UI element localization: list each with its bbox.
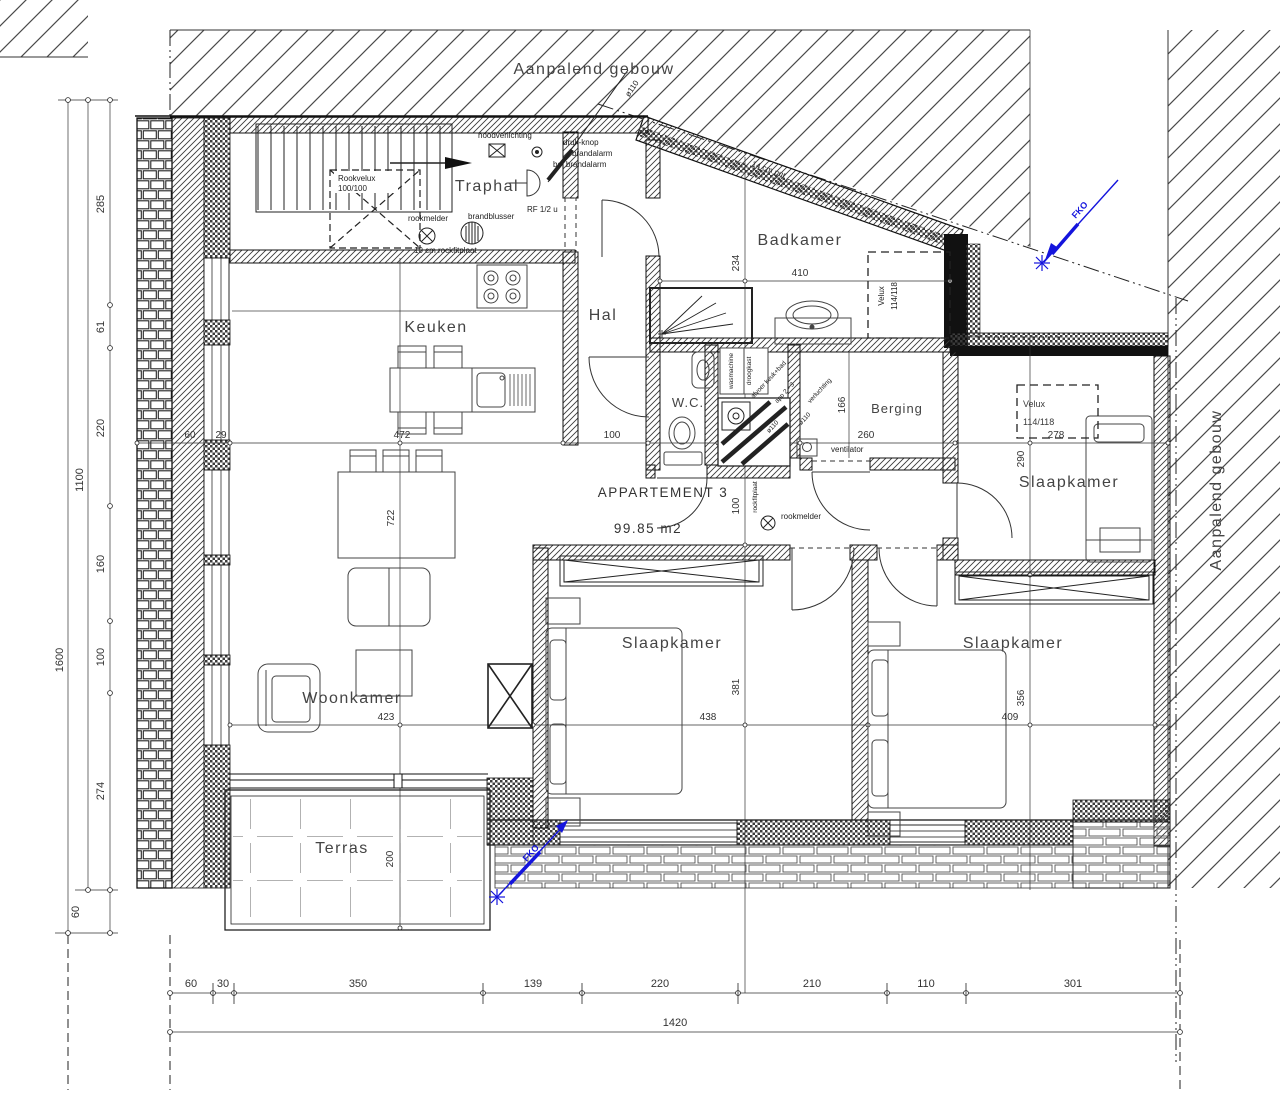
room-label-woonkamer: Woonkamer <box>302 690 401 707</box>
rookvelux-line2: 100/100 <box>338 184 367 193</box>
dim-left-1600: 1600 <box>54 648 66 672</box>
note-wall: 10 cm rockfitplaat <box>414 246 477 255</box>
room-label-berging: Berging <box>871 401 923 416</box>
door-slaapkamer-left <box>792 548 854 610</box>
dim-left-60: 60 <box>70 906 82 918</box>
dim-inner-60: 60 <box>184 430 196 441</box>
dim-inner-166: 166 <box>837 396 848 413</box>
label-ventilator: ventilator <box>831 445 864 454</box>
label-noodverlichting: noodverlichting <box>478 131 532 140</box>
kitchen-sink <box>472 368 535 412</box>
dim-inner-409: 409 <box>1002 712 1019 723</box>
label-adjacent-right: Aanpalend gebouw <box>1208 409 1225 570</box>
dim-left-1100: 1100 <box>74 468 86 492</box>
dim-inner-438: 438 <box>700 712 717 723</box>
dim-inner-100-hal: 100 <box>604 430 621 441</box>
room-label-badkamer: Badkamer <box>758 232 843 249</box>
dim-inner-290: 290 <box>1016 450 1027 467</box>
dim-left-61: 61 <box>95 321 107 333</box>
corner-wall <box>944 234 968 348</box>
dim-inner-410: 410 <box>792 268 809 279</box>
dim-inner-100-mid: 100 <box>731 497 742 514</box>
wardrobe-left <box>560 556 763 586</box>
room-label-slaapkamer-left: Slaapkamer <box>622 635 722 652</box>
label-brandalarm: brandalarm <box>572 149 613 158</box>
brick-wall-left <box>137 118 172 888</box>
noodverlichting-icon <box>489 144 505 157</box>
label-fire-door: RF 1/2 u <box>527 205 558 214</box>
door-badkamer <box>602 200 659 257</box>
column-flue <box>488 664 532 728</box>
dim-inner-472: 472 <box>394 430 411 441</box>
brick-paving <box>495 845 1073 888</box>
fire-door-traphal <box>565 198 576 252</box>
dim-inner-356: 356 <box>1016 689 1027 706</box>
dim-inner-234: 234 <box>731 254 742 271</box>
door-leaf-symbol <box>527 170 540 196</box>
dim-inner-381: 381 <box>731 678 742 695</box>
dim-inner-29: 29 <box>215 430 227 441</box>
bed-right <box>868 622 1006 836</box>
stairs-direction-arrow <box>445 157 472 169</box>
apartment-name: APPARTEMENT 3 <box>598 485 729 500</box>
label-brandblusser: brandblusser <box>468 212 515 221</box>
dim-bottom-30: 30 <box>217 978 229 990</box>
bed-left <box>546 598 682 826</box>
velux-bad-line1: Velux <box>877 286 886 306</box>
kitchen-table <box>390 346 472 434</box>
label-drukknop: druk-knop <box>563 138 599 147</box>
dim-bottom-350: 350 <box>349 978 367 990</box>
room-label-wc: W.C. <box>672 395 704 410</box>
note-duct: rockfitplaat <box>752 481 759 513</box>
note-verluchting: verluchting <box>807 377 834 405</box>
room-label-slaapkamer-top: Slaapkamer <box>1019 474 1119 491</box>
label-rookmelder-2: rookmelder <box>781 512 821 521</box>
dim-left-274: 274 <box>95 782 107 800</box>
revision-top <box>1034 180 1118 271</box>
dining-table <box>338 450 455 558</box>
door-hal <box>589 357 649 417</box>
terrace-window <box>230 774 488 788</box>
revision-star-top <box>1034 255 1050 271</box>
revision-star-bottom <box>489 889 505 905</box>
duct-block <box>718 398 790 466</box>
revision-label-top: FKO <box>1070 200 1090 221</box>
dim-bottom-139: 139 <box>524 978 542 990</box>
room-label-hal: Hal <box>589 307 618 324</box>
dim-inner-423: 423 <box>378 712 395 723</box>
wardrobe-right <box>955 572 1153 604</box>
velux-bad-line2: 114/118 <box>890 282 899 310</box>
dim-left-285: 285 <box>95 195 107 213</box>
dim-left-160: 160 <box>95 555 107 573</box>
dim-inner-200: 200 <box>385 850 396 867</box>
label-adjacent-top: Aanpalend gebouw <box>513 61 674 78</box>
floor-plan-drawing: Aanpalend gebouw Aanpalend gebouw Trapha… <box>0 0 1280 1099</box>
dim-left-220: 220 <box>95 419 107 437</box>
dim-bottom-220: 220 <box>651 978 669 990</box>
room-label-terras: Terras <box>315 840 368 857</box>
toilet <box>664 417 702 465</box>
dim-bottom-110: 110 <box>917 978 935 990</box>
dim-bottom-60: 60 <box>185 978 197 990</box>
dim-left-100: 100 <box>95 648 107 666</box>
room-label-slaapkamer-right: Slaapkamer <box>963 635 1063 652</box>
apartment-area: 99.85 m2 <box>614 521 682 536</box>
dim-bottom-1420: 1420 <box>663 1017 687 1029</box>
brandblusser-icon <box>461 222 483 244</box>
label-bel-brandalarm: bel brandalarm <box>553 160 607 169</box>
dim-inner-260: 260 <box>858 430 875 441</box>
rookvelux-line1: Rookvelux <box>338 174 375 183</box>
room-label-keuken: Keuken <box>404 319 467 336</box>
stove <box>477 265 527 308</box>
velux-slaap-line1: Velux <box>1023 399 1046 409</box>
rookmelder-icon-2 <box>761 516 775 530</box>
door-berging <box>812 472 870 530</box>
rookmelder-icon <box>419 228 435 244</box>
floor-plan-page: Aanpalend gebouw Aanpalend gebouw Trapha… <box>0 0 1280 1099</box>
dim-bottom-301: 301 <box>1064 978 1082 990</box>
revision-marks <box>489 180 1118 905</box>
velux-slaap-line2: 114/118 <box>1023 417 1054 427</box>
dim-inner-278: 278 <box>1048 430 1065 441</box>
dim-inner-722: 722 <box>386 509 397 526</box>
dim-bottom-210: 210 <box>803 978 821 990</box>
note-wasmachine: wasmachine <box>728 353 735 391</box>
shower <box>650 288 752 343</box>
door-slaapkamer-top <box>957 483 1012 538</box>
note-droogkast: droogkast <box>746 357 753 386</box>
label-rookmelder: rookmelder <box>408 214 448 223</box>
door-slaapkamer-right <box>879 548 937 606</box>
room-label-traphal: Traphal <box>455 178 519 195</box>
